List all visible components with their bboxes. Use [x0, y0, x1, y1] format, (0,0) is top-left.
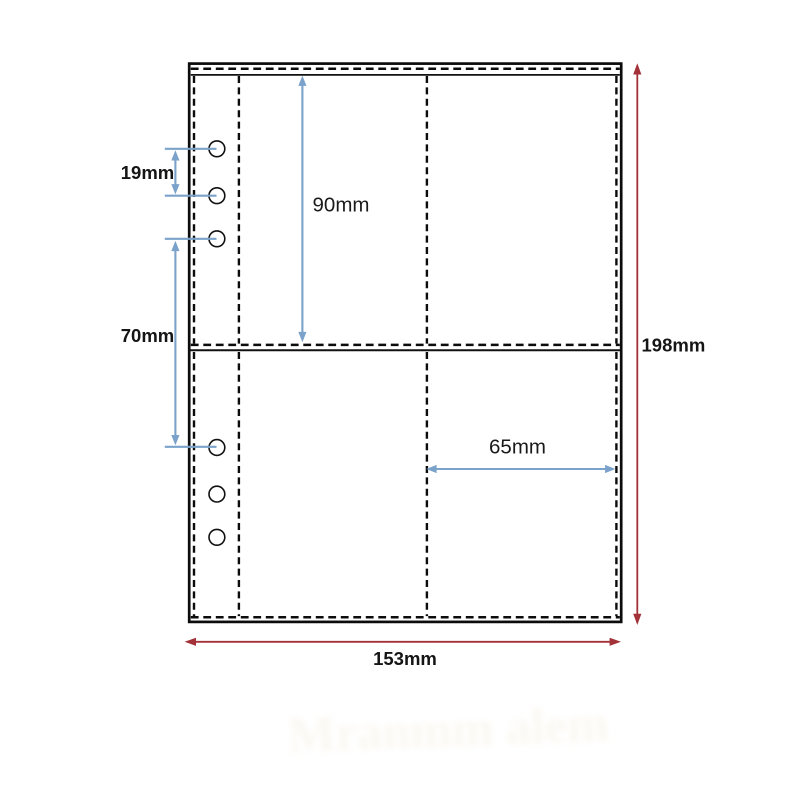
svg-text:19mm: 19mm: [121, 162, 174, 183]
svg-text:65mm: 65mm: [489, 436, 546, 459]
svg-text:153mm: 153mm: [373, 648, 437, 669]
svg-text:Mranmm alem: Mranmm alem: [287, 695, 609, 762]
svg-text:198mm: 198mm: [642, 335, 706, 356]
svg-text:90mm: 90mm: [313, 194, 370, 217]
svg-text:70mm: 70mm: [121, 325, 174, 346]
